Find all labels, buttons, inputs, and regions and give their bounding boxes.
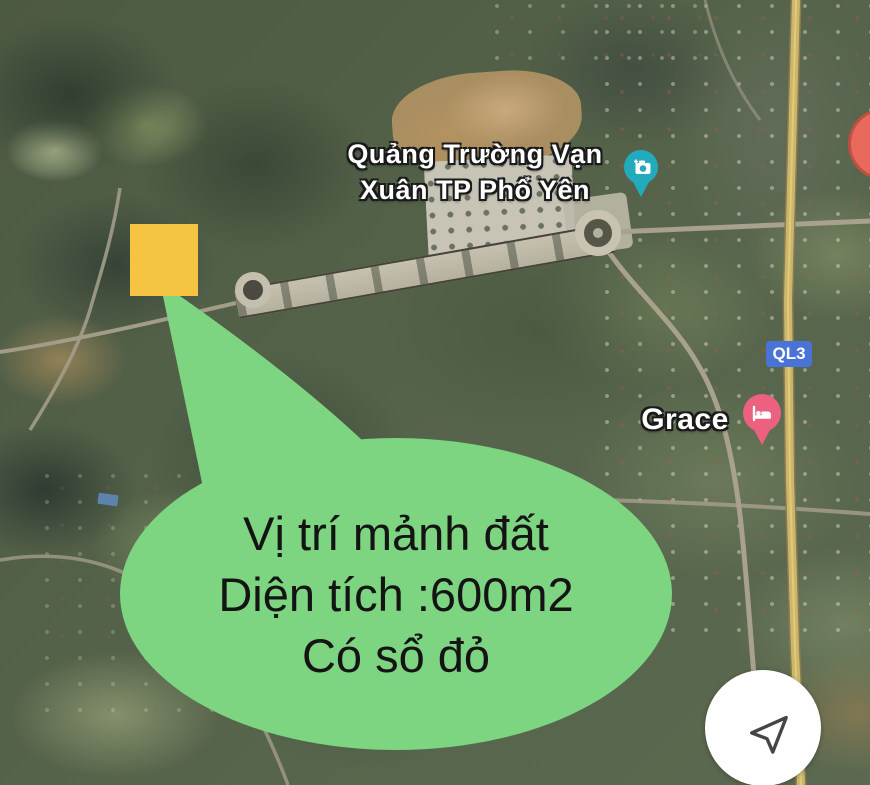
hotel-pin-circle bbox=[743, 394, 781, 432]
hotel-pin[interactable] bbox=[743, 394, 781, 445]
bed-icon bbox=[751, 405, 773, 422]
map-screenshot: QL3 Quảng Trường Vạn Xuân TP Phổ Yên Gra… bbox=[0, 0, 870, 785]
annotation-bubble: Vị trí mảnh đất Diện tích :600m2 Có sổ đ… bbox=[120, 438, 672, 750]
route-badge-ql3[interactable]: QL3 bbox=[766, 341, 812, 367]
photo-spot-pin[interactable] bbox=[624, 150, 658, 197]
place-label-line1: Quảng Trường Vạn bbox=[310, 136, 640, 172]
roundabout-small bbox=[235, 272, 271, 308]
minor-road-west bbox=[0, 303, 236, 352]
minor-road-east bbox=[615, 221, 870, 232]
hotel-pin-tail bbox=[754, 430, 770, 445]
bubble-text-line2: Diện tích :600m2 bbox=[218, 564, 573, 625]
bubble-text-line3: Có sổ đỏ bbox=[302, 625, 490, 686]
bubble-text-line1: Vị trí mảnh đất bbox=[243, 503, 549, 564]
place-label-plaza[interactable]: Quảng Trường Vạn Xuân TP Phổ Yên bbox=[310, 136, 640, 208]
photo-pin-circle bbox=[624, 150, 658, 184]
send-arrow-icon bbox=[744, 708, 790, 754]
camera-icon bbox=[631, 158, 652, 176]
navigation-button[interactable] bbox=[705, 670, 821, 785]
minor-road-near-plot bbox=[30, 188, 120, 430]
minor-road-cross-east bbox=[600, 500, 870, 514]
plot-location-marker bbox=[130, 224, 198, 296]
roundabout-large bbox=[575, 210, 621, 256]
minor-road-northeast bbox=[705, 0, 760, 120]
photo-pin-tail bbox=[633, 182, 649, 197]
place-label-line2: Xuân TP Phổ Yên bbox=[310, 172, 640, 208]
hotel-label[interactable]: Grace bbox=[620, 402, 750, 438]
